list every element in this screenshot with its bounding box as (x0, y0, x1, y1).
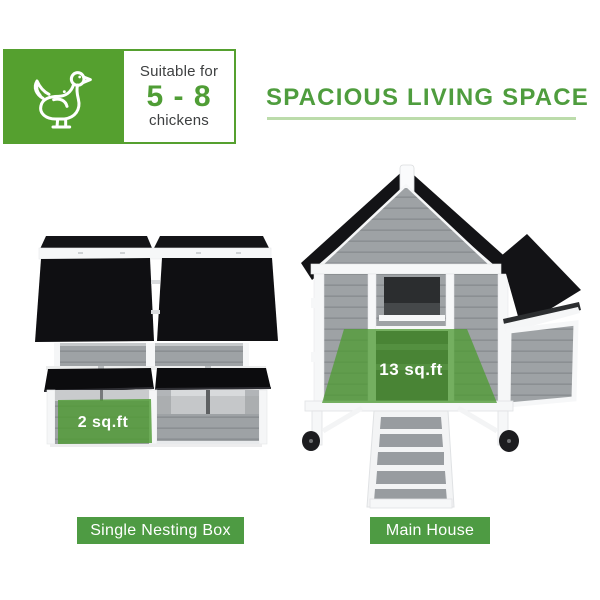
main-house-eave-board (311, 264, 501, 274)
suitability-badge: Suitable for 5 - 8 chickens (3, 49, 236, 144)
nesting-box-area-label: 2 sq.ft (78, 414, 129, 431)
title-underline (267, 117, 576, 120)
badge-green-square (3, 49, 122, 144)
nesting-box-roof-left (35, 258, 154, 342)
nesting-box-roof-top-left (40, 236, 152, 249)
caption-nesting-box: Single Nesting Box (77, 517, 244, 544)
page-title: SPACIOUS LIVING SPACE (266, 84, 589, 112)
chicken-icon (20, 57, 106, 137)
nesting-box-roof-top-right (154, 236, 269, 248)
badge-info-box: Suitable for 5 - 8 chickens (122, 49, 236, 144)
caption-main-house: Main House (370, 517, 490, 544)
main-house-illustration: 13 sq.ft (301, 165, 581, 508)
badge-line1: Suitable for (140, 63, 218, 81)
badge-line2: chickens (149, 112, 209, 130)
badge-range: 5 - 8 (146, 81, 211, 113)
main-house-area-label: 13 sq.ft (379, 360, 443, 379)
nesting-box-illustration: 2 sq.ft (35, 236, 278, 447)
nesting-box-lid-right (155, 368, 271, 390)
nesting-box-roof-right (157, 258, 278, 341)
side-nest-box (508, 323, 576, 405)
